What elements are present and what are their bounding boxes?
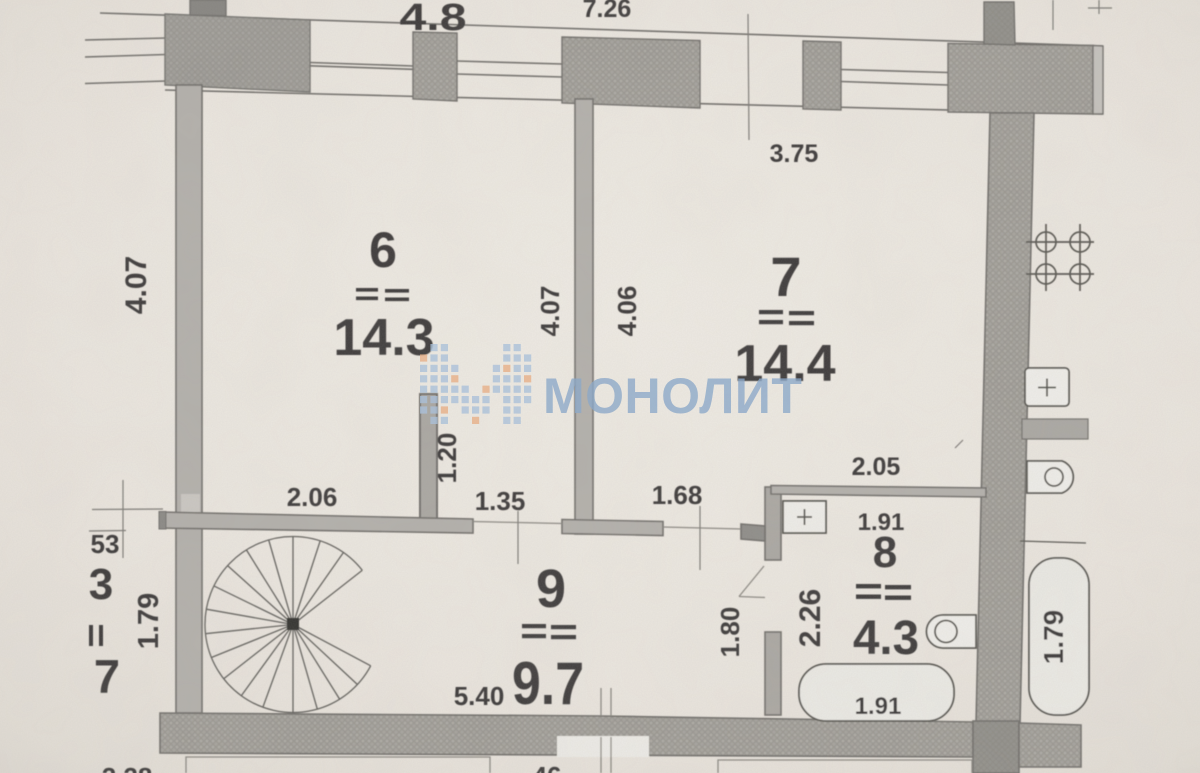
svg-text:1.35: 1.35: [475, 486, 526, 516]
svg-text:4.3: 4.3: [853, 612, 919, 665]
svg-text:1.20: 1.20: [432, 433, 462, 484]
svg-text:3: 3: [89, 560, 113, 609]
svg-text:1.91: 1.91: [855, 693, 902, 720]
svg-text:2.05: 2.05: [852, 453, 901, 481]
svg-text:53: 53: [91, 529, 120, 559]
svg-text:1.80: 1.80: [715, 607, 745, 658]
svg-text:1.79: 1.79: [1038, 610, 1069, 665]
svg-text:9: 9: [536, 559, 566, 619]
svg-text:14.3: 14.3: [333, 309, 434, 367]
svg-text:2.06: 2.06: [287, 482, 338, 512]
svg-text:5.40: 5.40: [454, 681, 505, 711]
svg-text:7.26: 7.26: [583, 0, 632, 23]
svg-text:7: 7: [94, 650, 120, 703]
svg-text:1.68: 1.68: [652, 480, 703, 510]
svg-text:1.79: 1.79: [133, 593, 165, 649]
svg-text:2.28: 2.28: [102, 762, 153, 773]
svg-text:МОНОЛИТ: МОНОЛИТ: [543, 368, 802, 424]
svg-text:4.07: 4.07: [535, 286, 565, 337]
svg-text:3.75: 3.75: [770, 140, 819, 168]
svg-text:7: 7: [770, 245, 801, 308]
svg-text:2.26: 2.26: [794, 589, 827, 647]
svg-text:9.7: 9.7: [512, 650, 584, 717]
svg-text:4.8: 4.8: [400, 0, 467, 39]
svg-text:8: 8: [873, 528, 897, 577]
svg-text:4.07: 4.07: [120, 256, 153, 314]
svg-text:46: 46: [533, 761, 562, 773]
svg-text:6: 6: [369, 222, 397, 278]
svg-text:4.06: 4.06: [612, 286, 642, 337]
